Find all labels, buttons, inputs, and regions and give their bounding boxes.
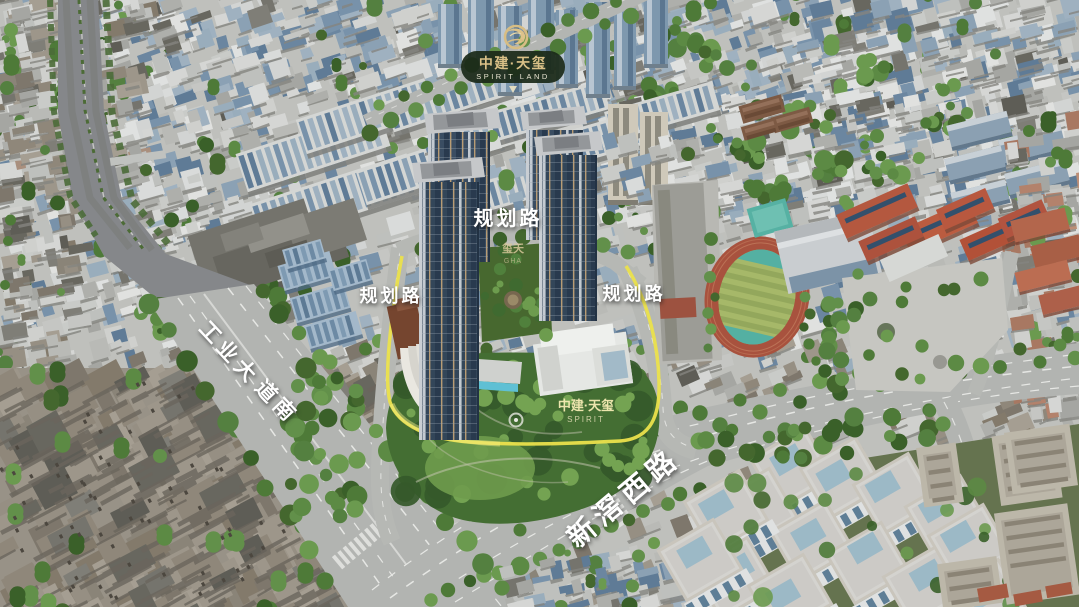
svg-text:SPIRIT: SPIRIT: [567, 415, 605, 424]
svg-text:规划路: 规划路: [603, 283, 666, 304]
svg-text:SPIRIT LAND: SPIRIT LAND: [476, 72, 550, 81]
svg-text:中建·天玺: 中建·天玺: [479, 55, 547, 71]
svg-text:GHA: GHA: [504, 258, 522, 265]
svg-text:规划路: 规划路: [360, 285, 423, 306]
svg-text:规划路: 规划路: [474, 206, 543, 230]
svg-text:中建·天玺: 中建·天玺: [558, 398, 614, 413]
svg-text:玺天: 玺天: [502, 241, 525, 255]
